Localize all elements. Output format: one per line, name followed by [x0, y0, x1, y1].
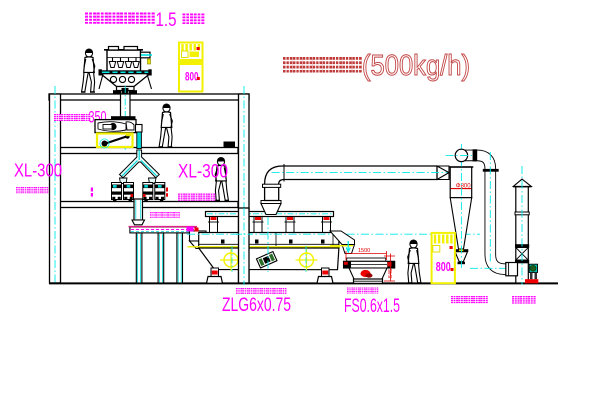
- svg-text:1500: 1500: [358, 248, 370, 254]
- svg-text:800: 800: [185, 72, 199, 84]
- svg-text:XL-300: XL-300: [14, 161, 62, 181]
- svg-text:545: 545: [388, 269, 394, 278]
- svg-text:FS0.6x1.5: FS0.6x1.5: [344, 296, 400, 317]
- svg-text:(500kg/h): (500kg/h): [362, 50, 470, 82]
- svg-text:1.5: 1.5: [156, 10, 177, 31]
- svg-text:ZLG6x0.75: ZLG6x0.75: [222, 295, 291, 316]
- svg-text:XL-300: XL-300: [178, 162, 228, 183]
- svg-text:800: 800: [436, 259, 451, 274]
